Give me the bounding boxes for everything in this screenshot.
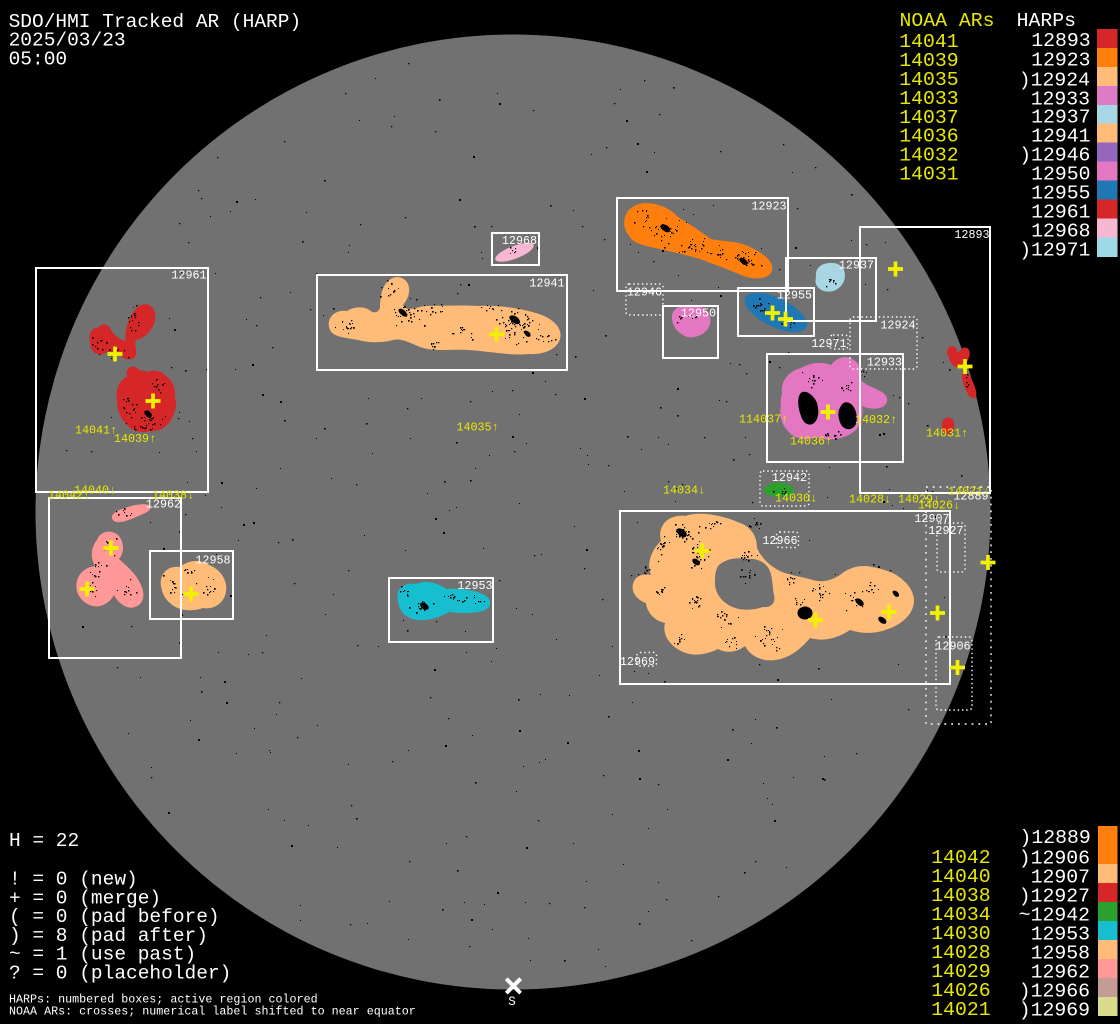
svg-text:14036↑: 14036↑	[790, 435, 832, 449]
svg-text:114037↑: 114037↑	[739, 413, 788, 427]
svg-text:NOAA ARs: NOAA ARs	[900, 10, 995, 32]
svg-text:H = 22: H = 22	[9, 830, 79, 852]
svg-text:14021: 14021	[931, 999, 990, 1021]
svg-text:14030↓: 14030↓	[775, 492, 817, 506]
svg-text:12953: 12953	[457, 579, 492, 593]
svg-text:14039↑: 14039↑	[114, 432, 156, 446]
svg-text:14031↑: 14031↑	[926, 427, 968, 441]
svg-text:14035↑: 14035↑	[457, 421, 499, 435]
svg-text:S: S	[508, 995, 516, 1009]
svg-text:? = 0 (placeholder): ? = 0 (placeholder)	[9, 963, 231, 985]
svg-text:14021↓: 14021↓	[948, 485, 990, 499]
svg-text:14031: 14031	[899, 164, 958, 186]
svg-text:12961: 12961	[171, 269, 206, 283]
svg-text:12927: 12927	[928, 524, 963, 538]
svg-text:)12889: )12889	[1020, 827, 1091, 849]
svg-text:14042↓: 14042↓	[48, 489, 90, 503]
svg-text:12924: 12924	[880, 319, 915, 333]
svg-text:12923: 12923	[1031, 50, 1090, 72]
svg-text:12923: 12923	[751, 200, 786, 214]
svg-text:14041↑: 14041↑	[75, 424, 117, 438]
svg-text:12893: 12893	[954, 228, 989, 242]
svg-text:12968: 12968	[502, 234, 537, 248]
svg-text:14038↓: 14038↓	[152, 489, 194, 503]
svg-text:12942: 12942	[772, 471, 807, 485]
svg-text:05:00: 05:00	[9, 49, 68, 71]
svg-text:14028↓: 14028↓	[849, 493, 891, 507]
svg-text:12946: 12946	[627, 286, 662, 300]
svg-text:12958: 12958	[195, 554, 230, 568]
svg-text:12906: 12906	[935, 640, 970, 654]
svg-text:12893: 12893	[1031, 30, 1090, 52]
svg-text:)12971: )12971	[1019, 240, 1090, 262]
svg-text:12955: 12955	[777, 289, 812, 303]
svg-text:12937: 12937	[839, 259, 874, 273]
svg-text:12950: 12950	[681, 307, 716, 321]
svg-text:12933: 12933	[867, 356, 902, 370]
svg-text:14032↑: 14032↑	[855, 413, 897, 427]
svg-text:12971: 12971	[811, 337, 846, 351]
svg-text:12969: 12969	[620, 655, 655, 669]
svg-text:NOAA ARs: crosses; numerical l: NOAA ARs: crosses; numerical label shift…	[9, 1005, 416, 1019]
svg-text:12966: 12966	[762, 534, 797, 548]
svg-text:12941: 12941	[529, 277, 564, 291]
svg-text:14026↓: 14026↓	[918, 499, 960, 513]
svg-text:)12969: )12969	[1019, 1000, 1090, 1022]
svg-text:14034↓: 14034↓	[663, 484, 705, 498]
